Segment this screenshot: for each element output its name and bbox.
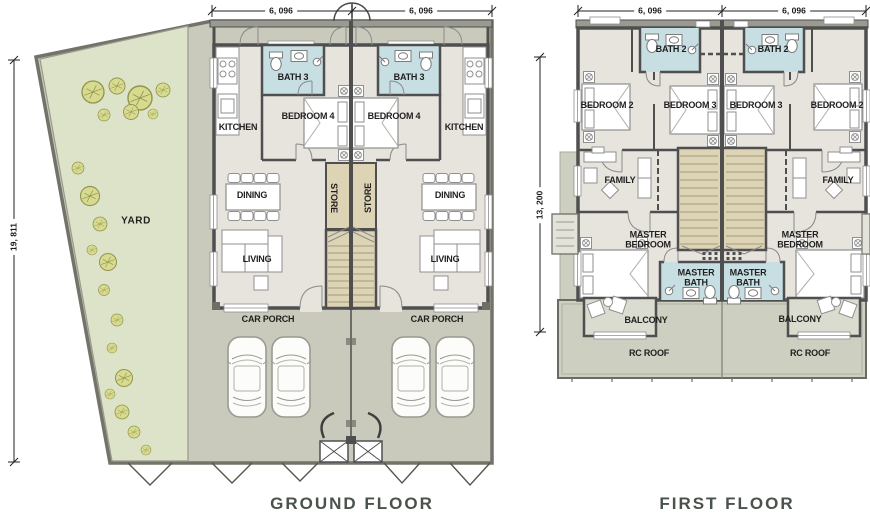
room-label-balcony-left: BALCONY bbox=[624, 316, 667, 326]
ground-floor-title: GROUND FLOOR bbox=[270, 495, 434, 513]
room-label-bath2-left: BATH 2 bbox=[656, 45, 687, 55]
room-label-bedroom2-right: BEDROOM 2 bbox=[811, 101, 864, 111]
first-floor-plan bbox=[552, 17, 870, 382]
room-label-bedroom2-left: BEDROOM 2 bbox=[581, 101, 634, 111]
room-label-masterbath-right: MASTER BATH bbox=[723, 268, 773, 287]
fence-gates bbox=[128, 463, 490, 485]
room-label-masterbath-left: MASTER BATH bbox=[671, 268, 721, 287]
room-label-yard: YARD bbox=[121, 217, 151, 228]
dimension-first-width-right: 6, 096 bbox=[778, 6, 810, 15]
room-label-rcroof-left: RC ROOF bbox=[629, 349, 669, 359]
room-label-bedroom3-left: BEDROOM 3 bbox=[664, 101, 717, 111]
room-label-bedroom4-right: BEDROOM 4 bbox=[368, 112, 421, 122]
room-label-kitchen-left: KITCHEN bbox=[219, 123, 258, 133]
room-label-balcony-right: BALCONY bbox=[778, 315, 821, 325]
right-ledge bbox=[862, 214, 870, 254]
room-label-carporch-right: CAR PORCH bbox=[411, 315, 464, 325]
room-label-masterbedroom-right: MASTER BEDROOM bbox=[768, 230, 832, 249]
room-label-living-left: LIVING bbox=[243, 255, 272, 265]
room-label-masterbedroom-left: MASTER BEDROOM bbox=[616, 230, 680, 249]
dimension-ground-width-left: 6, 096 bbox=[265, 6, 297, 15]
room-label-store-right: STORE bbox=[364, 183, 374, 213]
dimension-first-depth: 13, 200 bbox=[535, 187, 544, 223]
first-floor-title: FIRST FLOOR bbox=[659, 495, 794, 513]
room-label-bath3-right: BATH 3 bbox=[394, 73, 425, 83]
dimension-ground-width-right: 6, 096 bbox=[405, 6, 437, 15]
dimension-first-width-left: 6, 096 bbox=[634, 6, 666, 15]
room-label-bedroom3-right: BEDROOM 3 bbox=[730, 101, 783, 111]
room-label-family-right: FAMILY bbox=[823, 176, 854, 186]
room-label-dining-right: DINING bbox=[435, 191, 465, 201]
room-label-rcroof-right: RC ROOF bbox=[790, 349, 830, 359]
room-label-bath2-right: BATH 2 bbox=[758, 45, 789, 55]
room-label-store-left: STORE bbox=[328, 183, 338, 213]
room-label-dining-left: DINING bbox=[237, 191, 267, 201]
room-label-kitchen-right: KITCHEN bbox=[445, 123, 484, 133]
floor-plan-canvas: 6, 096 6, 096 19, 811 YARD KITCHEN KITCH… bbox=[0, 0, 870, 515]
room-label-bath3-left: BATH 3 bbox=[278, 73, 309, 83]
room-label-carporch-left: CAR PORCH bbox=[242, 315, 295, 325]
room-label-family-left: FAMILY bbox=[605, 176, 636, 186]
room-label-living-right: LIVING bbox=[431, 255, 460, 265]
room-label-bedroom4-left: BEDROOM 4 bbox=[282, 112, 335, 122]
dimension-ground-depth: 19, 811 bbox=[9, 219, 18, 255]
